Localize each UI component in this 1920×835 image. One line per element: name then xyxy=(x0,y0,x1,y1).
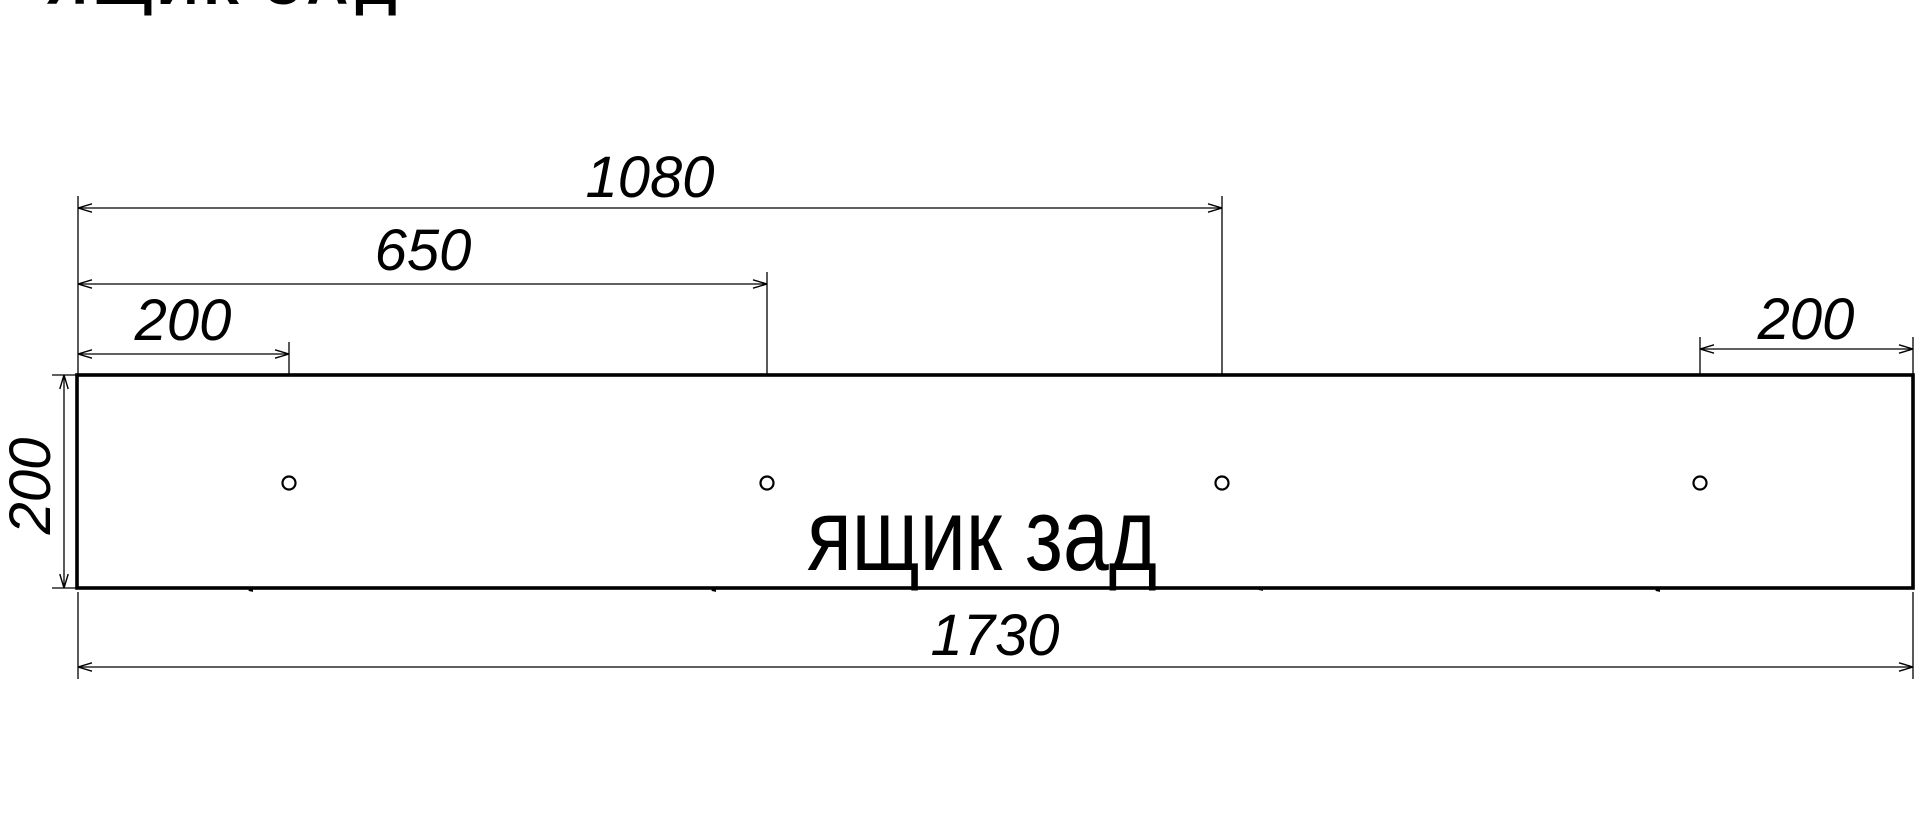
hole-circle-4 xyxy=(1694,477,1707,490)
dimension-label-1080: 1080 xyxy=(585,145,714,210)
part-name-label: ящик зад xyxy=(807,477,1157,592)
dimension-label-200-left: 200 xyxy=(134,288,232,353)
dimension-label-650: 650 xyxy=(375,218,472,283)
dimension-1730: 1730 xyxy=(78,603,1913,668)
dimension-label-200-height: 200 xyxy=(0,438,63,536)
dimension-label-200-right: 200 xyxy=(1757,287,1855,352)
hole-circle-1 xyxy=(283,477,296,490)
dimension-200-right: 200 xyxy=(1700,287,1913,352)
dimension-label-1730: 1730 xyxy=(930,603,1059,668)
technical-drawing: 1080 650 200 200 200 1730 xyxy=(0,0,1920,835)
dimension-650: 650 xyxy=(78,218,767,284)
hole-circle-2 xyxy=(761,477,774,490)
dimension-1080: 1080 xyxy=(78,145,1222,210)
dimension-200-left: 200 xyxy=(78,288,289,354)
drawing-canvas: ЯЩИК ЗАД 1080 xyxy=(0,0,1920,835)
dimension-200-height: 200 xyxy=(0,375,64,588)
hole-circle-3 xyxy=(1216,477,1229,490)
